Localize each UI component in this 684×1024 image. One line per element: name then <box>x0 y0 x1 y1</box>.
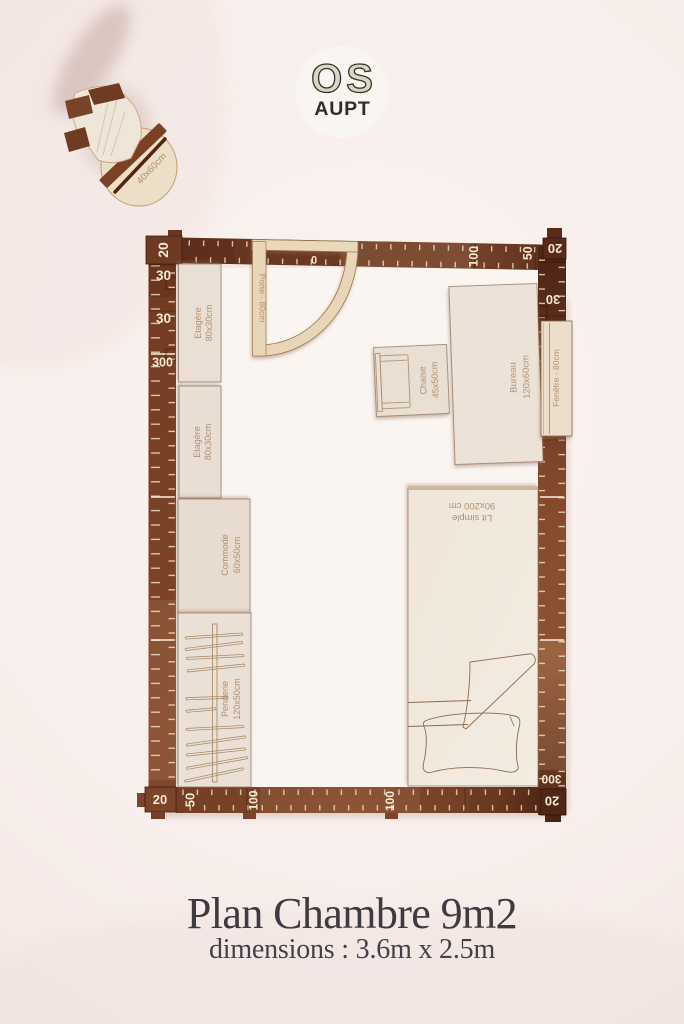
svg-text:80x30cm: 80x30cm <box>204 305 214 342</box>
svg-text:100: 100 <box>383 791 397 811</box>
svg-text:120x50cm: 120x50cm <box>232 678 242 720</box>
svg-text:AUPT: AUPT <box>314 98 370 120</box>
svg-text:20: 20 <box>545 794 559 809</box>
svg-text:20: 20 <box>155 242 171 258</box>
svg-text:50: 50 <box>183 793 198 807</box>
svg-text:Fenêtre - 80cm: Fenêtre - 80cm <box>551 349 561 407</box>
svg-text:Chaise: Chaise <box>417 366 428 394</box>
svg-text:Lit simple: Lit simple <box>452 512 492 523</box>
svg-text:60x50cm: 60x50cm <box>232 537 242 574</box>
svg-text:Etagère: Etagère <box>193 307 203 339</box>
svg-text:45x50cm: 45x50cm <box>429 361 441 398</box>
svg-text:20: 20 <box>548 241 562 256</box>
svg-text:20: 20 <box>153 792 167 807</box>
svg-text:30: 30 <box>156 268 171 283</box>
svg-text:100: 100 <box>247 790 261 810</box>
svg-text:300: 300 <box>152 356 173 370</box>
svg-text:Bureau: Bureau <box>508 362 520 393</box>
svg-text:90x200 cm: 90x200 cm <box>449 500 496 511</box>
svg-text:50: 50 <box>521 246 535 260</box>
svg-text:300: 300 <box>541 772 561 786</box>
svg-text:30: 30 <box>156 311 171 326</box>
svg-text:0: 0 <box>311 255 317 267</box>
svg-text:80x30cm: 80x30cm <box>203 424 213 461</box>
svg-text:Etagère: Etagère <box>192 426 202 458</box>
svg-text:Porte - 80cm: Porte - 80cm <box>258 274 268 323</box>
svg-text:OS: OS <box>311 57 377 101</box>
svg-text:120x60cm: 120x60cm <box>520 355 533 399</box>
svg-text:Penderie: Penderie <box>220 681 230 717</box>
svg-text:Commode: Commode <box>220 534 230 576</box>
svg-text:30: 30 <box>546 292 560 307</box>
svg-text:100: 100 <box>466 246 480 267</box>
